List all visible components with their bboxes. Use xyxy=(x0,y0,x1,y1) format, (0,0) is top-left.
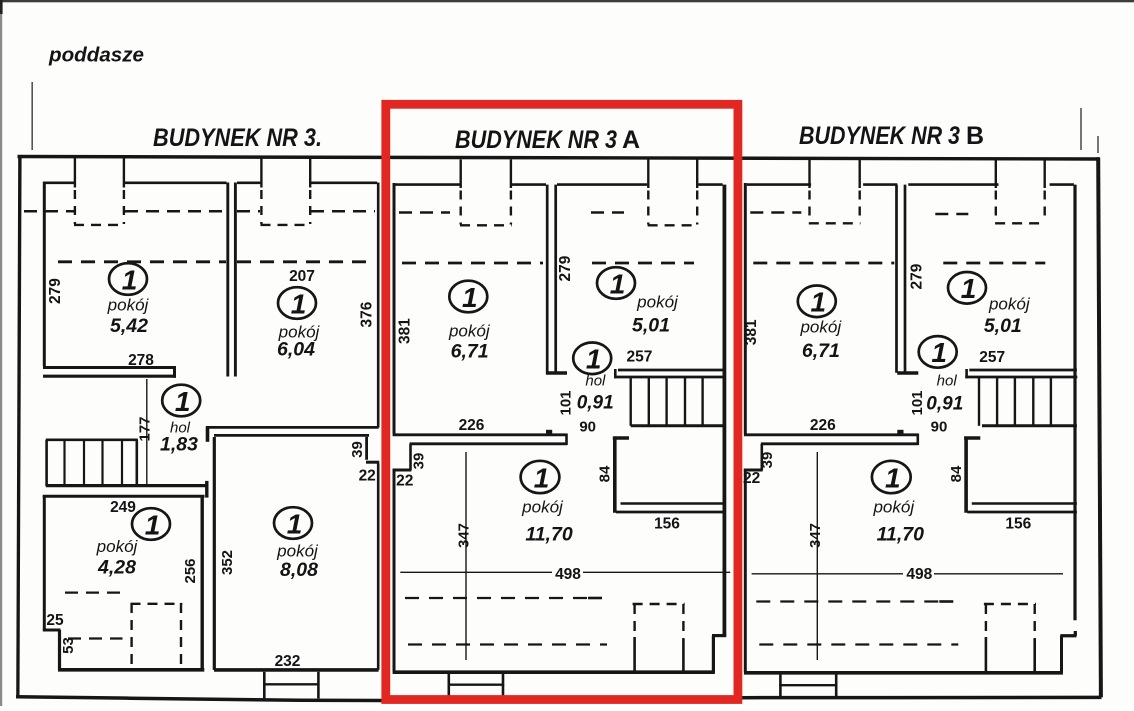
svg-text:249: 249 xyxy=(110,499,136,516)
svg-text:A: A xyxy=(622,126,640,154)
svg-text:5,01: 5,01 xyxy=(984,315,1022,337)
svg-text:pokój: pokój xyxy=(276,541,319,560)
svg-text:5,01: 5,01 xyxy=(632,315,670,337)
svg-text:226: 226 xyxy=(459,417,485,434)
svg-text:90: 90 xyxy=(579,419,596,436)
svg-text:39: 39 xyxy=(349,441,366,458)
svg-text:177: 177 xyxy=(137,416,154,441)
svg-text:381: 381 xyxy=(397,318,414,344)
svg-text:352: 352 xyxy=(219,550,236,575)
svg-text:6,71: 6,71 xyxy=(451,341,489,363)
svg-text:84: 84 xyxy=(948,465,965,482)
svg-text:1: 1 xyxy=(586,344,602,375)
svg-text:1: 1 xyxy=(534,462,550,493)
svg-text:1: 1 xyxy=(287,508,303,539)
svg-text:207: 207 xyxy=(289,268,315,285)
svg-text:376: 376 xyxy=(359,301,376,327)
svg-text:498: 498 xyxy=(555,566,581,583)
svg-text:90: 90 xyxy=(931,419,948,436)
svg-text:1: 1 xyxy=(811,287,827,318)
svg-text:347: 347 xyxy=(807,523,824,548)
svg-text:22: 22 xyxy=(396,473,413,490)
svg-text:347: 347 xyxy=(456,523,473,548)
svg-text:poddasze: poddasze xyxy=(48,45,144,67)
svg-text:22: 22 xyxy=(743,470,760,487)
svg-text:226: 226 xyxy=(810,417,836,434)
svg-text:hol: hol xyxy=(937,373,958,390)
svg-text:11,70: 11,70 xyxy=(525,524,573,546)
svg-text:256: 256 xyxy=(182,558,199,583)
svg-text:156: 156 xyxy=(654,515,680,532)
svg-text:279: 279 xyxy=(557,255,574,281)
svg-text:11,70: 11,70 xyxy=(877,524,925,546)
svg-text:257: 257 xyxy=(626,349,652,366)
svg-text:B: B xyxy=(966,122,984,150)
svg-text:1: 1 xyxy=(122,264,138,295)
svg-text:1: 1 xyxy=(462,282,478,313)
svg-text:pokój: pokój xyxy=(107,295,150,314)
svg-text:1,83: 1,83 xyxy=(160,434,198,456)
svg-text:25: 25 xyxy=(46,612,64,629)
svg-text:1: 1 xyxy=(145,509,161,540)
svg-text:1: 1 xyxy=(291,288,307,319)
svg-text:4,28: 4,28 xyxy=(97,557,136,579)
svg-text:257: 257 xyxy=(979,349,1005,366)
svg-text:0,91: 0,91 xyxy=(577,393,614,414)
svg-text:22: 22 xyxy=(359,468,376,485)
svg-text:1: 1 xyxy=(961,273,977,304)
svg-text:84: 84 xyxy=(597,465,614,482)
svg-text:381: 381 xyxy=(743,319,760,345)
svg-text:BUDYNEK NR 3: BUDYNEK NR 3 xyxy=(799,122,960,150)
svg-text:39: 39 xyxy=(759,452,776,469)
svg-text:8,08: 8,08 xyxy=(280,559,318,581)
svg-text:53: 53 xyxy=(60,637,77,654)
svg-text:39: 39 xyxy=(411,453,428,470)
svg-text:pokój: pokój xyxy=(636,293,679,312)
svg-text:1: 1 xyxy=(931,337,947,368)
svg-text:pokój: pokój xyxy=(521,498,564,517)
svg-text:232: 232 xyxy=(275,653,301,670)
svg-text:279: 279 xyxy=(908,263,925,289)
svg-text:156: 156 xyxy=(1005,515,1031,532)
svg-text:BUDYNEK NR 3: BUDYNEK NR 3 xyxy=(455,126,617,154)
svg-text:pokój: pokój xyxy=(448,322,491,341)
svg-text:6,04: 6,04 xyxy=(277,339,315,361)
svg-text:5,42: 5,42 xyxy=(110,315,148,337)
svg-text:1: 1 xyxy=(610,268,626,299)
svg-text:1: 1 xyxy=(885,462,901,493)
svg-text:pokój: pokój xyxy=(96,537,139,556)
svg-text:pokój: pokój xyxy=(872,498,915,517)
svg-text:BUDYNEK NR 3.: BUDYNEK NR 3. xyxy=(153,124,322,152)
svg-text:6,71: 6,71 xyxy=(802,340,840,362)
svg-text:498: 498 xyxy=(906,566,932,583)
svg-text:101: 101 xyxy=(558,390,575,415)
svg-text:278: 278 xyxy=(128,352,154,369)
svg-text:pokój: pokój xyxy=(799,318,842,337)
svg-text:1: 1 xyxy=(175,386,191,417)
svg-text:101: 101 xyxy=(909,390,926,415)
svg-text:0,91: 0,91 xyxy=(926,394,963,415)
svg-text:pokój: pokój xyxy=(988,295,1031,314)
svg-text:hol: hol xyxy=(585,373,606,390)
svg-text:279: 279 xyxy=(47,278,64,304)
